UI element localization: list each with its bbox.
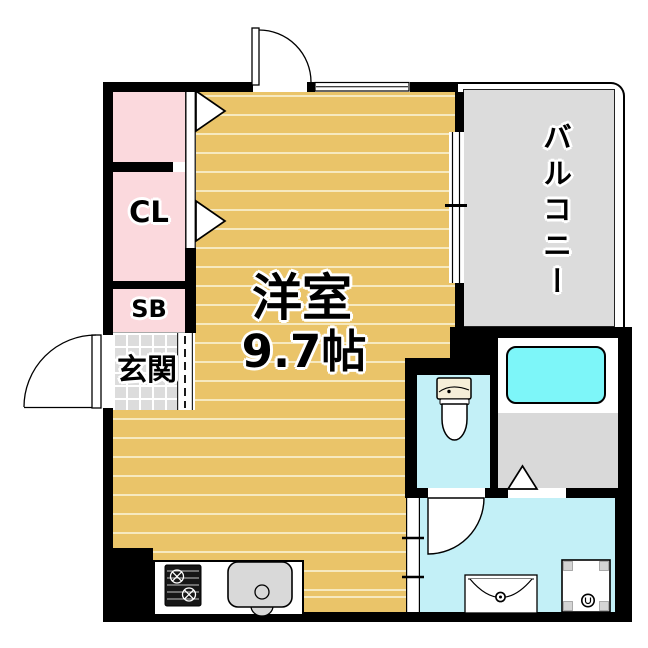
- shoe-box-label: SB: [113, 297, 185, 322]
- bathtub-icon: [507, 347, 605, 403]
- main-door-opening: [253, 82, 307, 92]
- closet-label: CL: [113, 197, 185, 227]
- balcony-window-icon: [445, 132, 467, 283]
- washing-machine-pan-icon: [562, 560, 610, 612]
- closet-door-triangle-icon: [196, 201, 225, 241]
- top-window-icon: [315, 83, 409, 92]
- entrance-door-swing-icon: [24, 335, 101, 408]
- gas-stove-icon: [165, 565, 201, 606]
- main-room-label: 洋室: [196, 272, 408, 325]
- washroom-sliding-partition: [402, 498, 424, 612]
- entrance-label: 玄関: [108, 355, 186, 387]
- closet-front: [185, 92, 196, 248]
- main-door-swing-icon: [252, 28, 311, 85]
- kitchen-sink-icon: [228, 562, 292, 616]
- balcony-label: バルコニー: [540, 104, 570, 319]
- toilet-icon: [437, 378, 471, 440]
- bath-door-triangle-icon: [508, 466, 537, 489]
- main-room-size-label: 9.7帖: [192, 328, 416, 375]
- toilet-door-opening: [428, 488, 485, 498]
- closet-door-triangle-icon: [196, 91, 225, 131]
- floor-plan: 洋室 9.7帖 バルコニー CL SB 玄関: [0, 0, 648, 648]
- washroom-door-swing-icon: [428, 498, 484, 554]
- washbasin-icon: [465, 575, 537, 613]
